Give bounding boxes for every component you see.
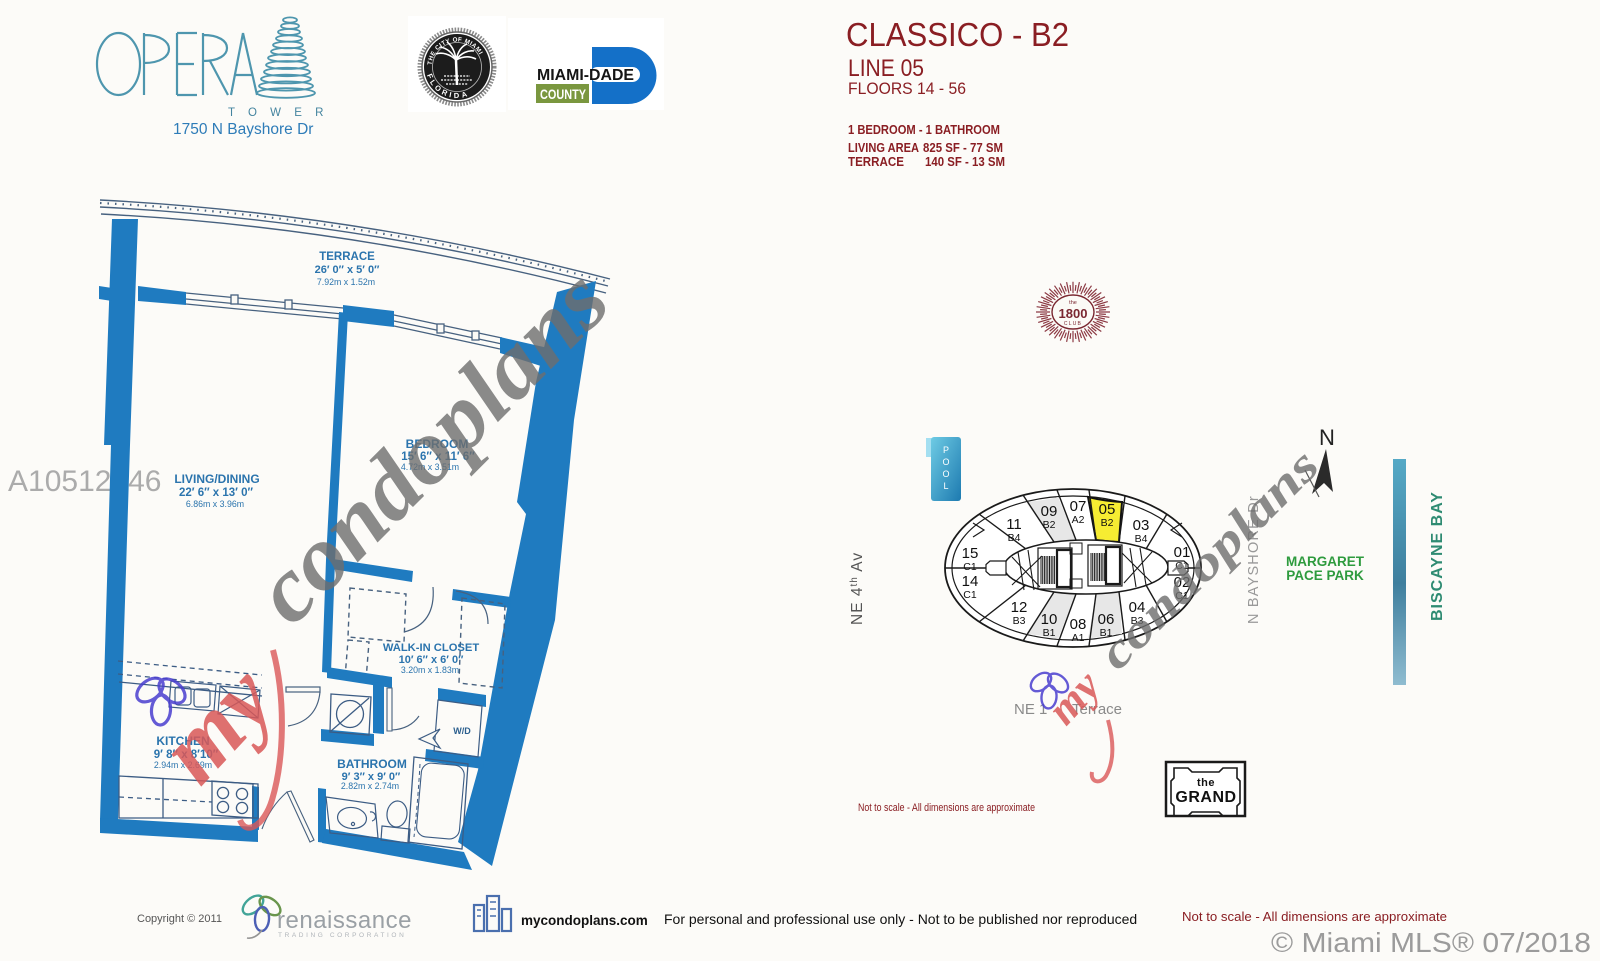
- svg-text:3.20m x 1.83m: 3.20m x 1.83m: [401, 665, 459, 675]
- svg-text:LIVING AREA825 SF - 77 SM: LIVING AREA825 SF - 77 SM: [848, 141, 1003, 155]
- svg-text:B3: B3: [1013, 615, 1026, 627]
- svg-text:7.92m x 1.52m: 7.92m x 1.52m: [317, 277, 375, 287]
- svg-text:11: 11: [1006, 516, 1022, 533]
- svg-text:CLASSICO - B2: CLASSICO - B2: [846, 16, 1069, 53]
- svg-text:O: O: [942, 469, 949, 479]
- svg-text:TERRACE140 SF - 13 SM: TERRACE140 SF - 13 SM: [848, 155, 1005, 169]
- svg-text:B1: B1: [1043, 627, 1056, 639]
- svg-text:14: 14: [962, 573, 979, 590]
- svg-text:W/D: W/D: [453, 726, 471, 736]
- svg-text:C1: C1: [963, 589, 977, 601]
- svg-text:For personal and professional: For personal and professional use only -…: [664, 911, 1137, 927]
- svg-text:6.86m x 3.96m: 6.86m x 3.96m: [186, 499, 244, 509]
- svg-text:LINE 05: LINE 05: [848, 55, 924, 82]
- svg-text:B4: B4: [1135, 533, 1148, 545]
- svg-text:A2: A2: [1072, 514, 1085, 526]
- svg-text:TERRACE: TERRACE: [319, 251, 375, 263]
- svg-text:B4: B4: [1008, 532, 1021, 544]
- svg-text:MIAMI-DADE: MIAMI-DADE: [537, 67, 634, 84]
- svg-text:BATHROOM: BATHROOM: [337, 757, 407, 771]
- svg-text:10: 10: [1041, 611, 1058, 628]
- svg-text:P: P: [943, 445, 949, 455]
- svg-text:B2: B2: [1101, 517, 1114, 529]
- svg-text:08: 08: [1070, 616, 1087, 633]
- svg-text:Copyright © 2011: Copyright © 2011: [137, 913, 222, 925]
- svg-text:15: 15: [962, 545, 979, 562]
- svg-text:1 BEDROOM - 1 BATHROOM: 1 BEDROOM - 1 BATHROOM: [848, 123, 1000, 137]
- svg-text:© Miami MLS® 07/2018: © Miami MLS® 07/2018: [1271, 927, 1591, 958]
- svg-text:LIVING/DINING: LIVING/DINING: [174, 472, 259, 486]
- svg-text:09: 09: [1041, 503, 1058, 520]
- svg-text:CLUB: CLUB: [1064, 321, 1082, 327]
- svg-text:BISCAYNE BAY: BISCAYNE BAY: [1429, 491, 1446, 621]
- svg-text:A10512446: A10512446: [8, 465, 162, 498]
- svg-text:1800: 1800: [1059, 306, 1088, 321]
- svg-text:12: 12: [1011, 599, 1028, 616]
- svg-text:TRADING CORPORATION: TRADING CORPORATION: [278, 932, 406, 939]
- svg-text:PACE PARK: PACE PARK: [1286, 568, 1364, 583]
- svg-text:2.82m x 2.74m: 2.82m x 2.74m: [341, 781, 399, 791]
- svg-text:C1: C1: [963, 561, 977, 573]
- svg-text:1750 N Bayshore Dr: 1750 N Bayshore Dr: [173, 121, 313, 138]
- svg-text:renaissance: renaissance: [277, 907, 412, 934]
- svg-text:B2: B2: [1043, 519, 1056, 531]
- svg-text:mycondoplans.com: mycondoplans.com: [521, 913, 648, 928]
- svg-text:GRAND: GRAND: [1175, 789, 1236, 806]
- svg-text:05: 05: [1099, 501, 1116, 518]
- svg-text:FLOORS 14 - 56: FLOORS 14 - 56: [848, 79, 966, 98]
- svg-text:MARGARET: MARGARET: [1286, 554, 1365, 569]
- svg-text:O: O: [942, 457, 949, 467]
- svg-text:NE 4th Av: NE 4th Av: [849, 552, 866, 625]
- svg-text:the: the: [1197, 777, 1215, 789]
- svg-text:Not to scale - All dimensions: Not to scale - All dimensions are approx…: [1182, 910, 1447, 924]
- svg-text:N: N: [1319, 425, 1335, 450]
- svg-text:22′ 6″ x 13′ 0″: 22′ 6″ x 13′ 0″: [179, 487, 254, 499]
- svg-text:Not to scale - All dimensions: Not to scale - All dimensions are approx…: [858, 802, 1035, 814]
- svg-text:L: L: [943, 481, 948, 491]
- svg-text:07: 07: [1070, 498, 1087, 515]
- svg-text:COUNTY: COUNTY: [540, 87, 586, 102]
- svg-text:WALK-IN CLOSET: WALK-IN CLOSET: [383, 642, 479, 654]
- svg-text:T O W E R: T O W E R: [228, 107, 328, 119]
- svg-text:03: 03: [1133, 517, 1150, 534]
- svg-text:A1: A1: [1072, 632, 1085, 644]
- svg-text:26′ 0″ x 5′ 0″: 26′ 0″ x 5′ 0″: [315, 264, 380, 276]
